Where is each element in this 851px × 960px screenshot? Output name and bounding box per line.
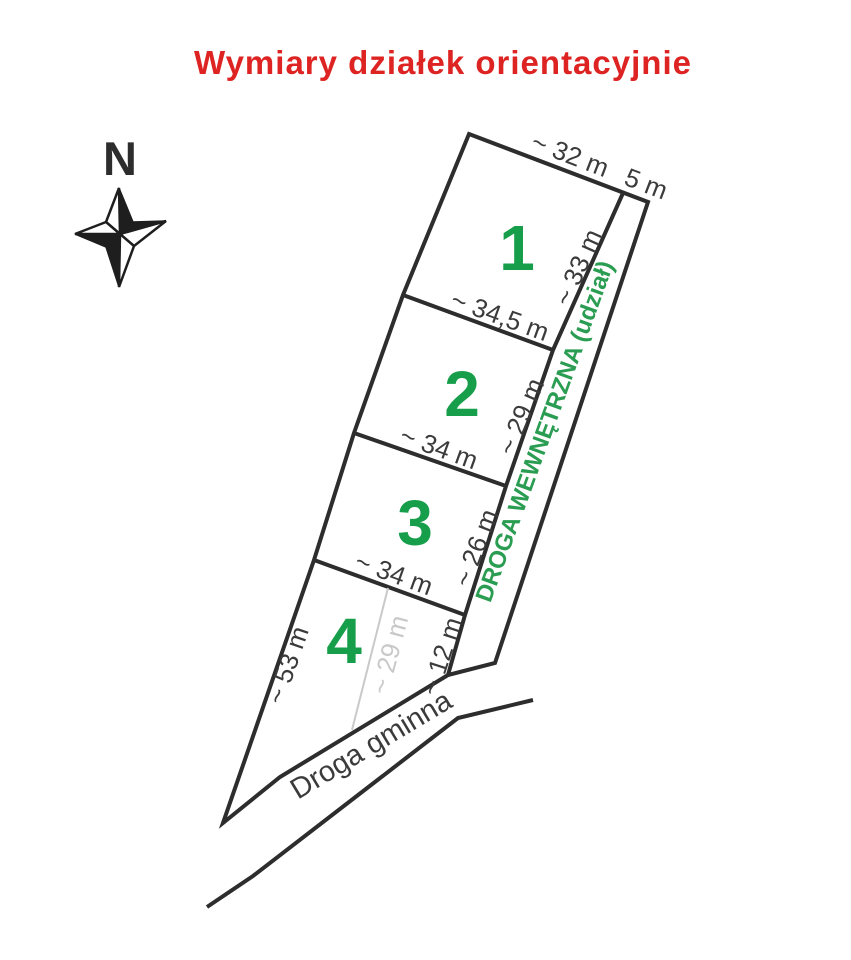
plot2-number: 2 bbox=[444, 358, 480, 430]
compass-north-label: N bbox=[103, 132, 137, 185]
land-plot-map: Wymiary działek orientacyjnie N bbox=[0, 0, 851, 960]
plot4-number: 4 bbox=[326, 605, 362, 677]
diagram-canvas: N bbox=[0, 0, 851, 960]
compass-rose: N bbox=[75, 132, 166, 287]
plot3-number: 3 bbox=[397, 487, 433, 559]
plot1-number: 1 bbox=[499, 212, 535, 284]
compass-star-icon bbox=[75, 188, 166, 287]
